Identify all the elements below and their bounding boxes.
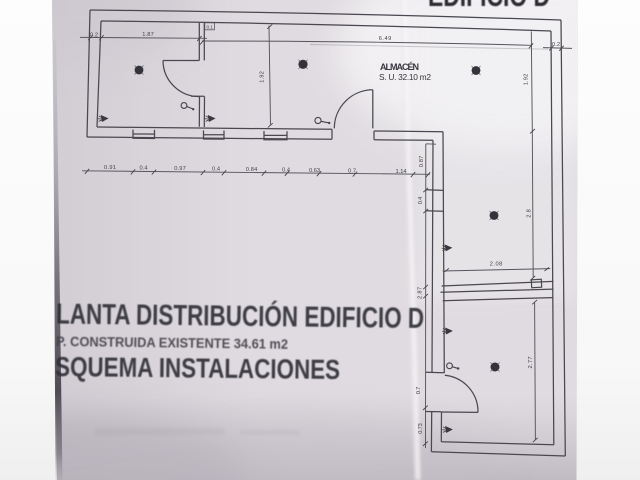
svg-text:0.2: 0.2 [90,33,98,39]
svg-text:ALMACÉN: ALMACÉN [380,62,419,72]
svg-text:1.92: 1.92 [524,74,530,86]
svg-text:0.84: 0.84 [246,167,258,173]
svg-text:0.4: 0.4 [418,197,424,205]
svg-text:LANTA DISTRIBUCIÓN EDIFICIO D: LANTA DISTRIBUCIÓN EDIFICIO D [56,299,424,335]
svg-text:0.73: 0.73 [418,423,424,434]
svg-text:0.4: 0.4 [212,167,220,173]
svg-text:0.4: 0.4 [140,166,148,172]
svg-text:S. U. 32.10 m2: S. U. 32.10 m2 [379,72,431,82]
svg-text:0.63: 0.63 [309,168,320,174]
svg-text:0.7: 0.7 [416,387,422,395]
svg-text:1.92: 1.92 [260,71,266,83]
svg-text:1.14: 1.14 [396,169,407,175]
svg-text:0.91: 0.91 [104,165,116,171]
svg-text:0.2: 0.2 [552,42,560,48]
svg-text:0.87: 0.87 [419,156,425,168]
svg-text:2.8: 2.8 [527,209,533,218]
svg-text:0.7: 0.7 [348,168,356,174]
svg-text:1.87: 1.87 [142,32,154,38]
svg-text:6.49: 6.49 [379,36,392,42]
svg-text:0.4: 0.4 [282,168,290,174]
svg-text:2.87: 2.87 [418,287,424,299]
svg-text:2.77: 2.77 [528,357,534,369]
svg-text:2.08: 2.08 [490,262,503,268]
svg-text:P. CONSTRUIDA EXISTENTE 34.61: P. CONSTRUIDA EXISTENTE 34.61 m2 [56,334,288,352]
svg-text:EDIFICIO D: EDIFICIO D [428,0,550,13]
svg-text:SQUEMA INSTALACIONES: SQUEMA INSTALACIONES [55,351,340,385]
svg-text:0.97: 0.97 [174,166,186,172]
